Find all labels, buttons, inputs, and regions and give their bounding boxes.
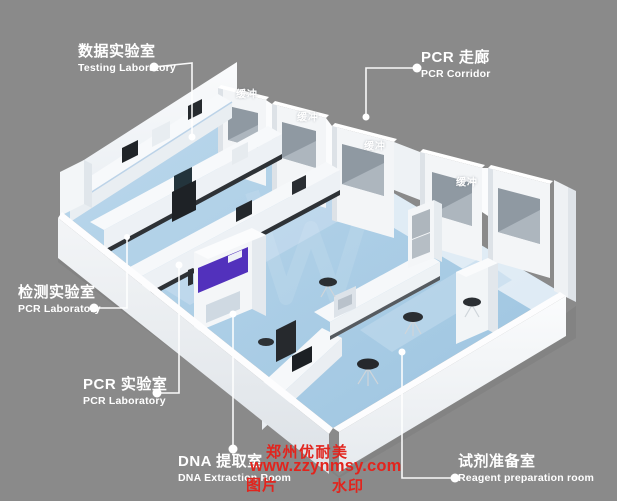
callout-dot: [124, 234, 130, 240]
callout-dot: [176, 262, 183, 269]
lab-chair: [258, 338, 274, 346]
partition-wall: [488, 165, 553, 278]
room-tag-buffer: 缓冲: [456, 174, 478, 189]
label-zh: 试剂准备室: [458, 454, 594, 471]
label-zh: 数据实验室: [78, 44, 176, 61]
room-tag-buffer: 缓冲: [364, 138, 386, 153]
callout-dot: [230, 311, 237, 318]
room-tag-buffer: 缓冲: [297, 109, 319, 124]
label-zh: PCR 实验室: [83, 377, 167, 394]
label-pcr-laboratory-left: 检测实验室 PCR Laboratory: [18, 285, 101, 315]
watermark-left: 图片: [246, 474, 278, 495]
label-reagent-preparation-room: 试剂准备室 Reagent preparation room: [458, 454, 594, 484]
label-pcr-corridor: PCR 走廊 PCR Corridor: [421, 50, 491, 80]
east-corner-wall: [554, 180, 576, 302]
glass-door-cabinet: [408, 200, 442, 268]
label-en: PCR Laboratory: [18, 303, 101, 316]
label-pcr-laboratory-bottom: PCR 实验室 PCR Laboratory: [83, 377, 167, 407]
watermark-right: 水印: [332, 475, 364, 496]
callout-line-pcr-corridor: [366, 68, 417, 117]
label-en: Testing Laboratory: [78, 62, 176, 75]
callout-dot: [363, 114, 370, 121]
label-zh: PCR 走廊: [421, 50, 491, 67]
callout-dot: [189, 134, 196, 141]
room-tag-buffer: 缓冲: [236, 86, 258, 101]
label-en: PCR Laboratory: [83, 395, 167, 408]
lab-rendering-image: 数据实验室 Testing Laboratory PCR 走廊 PCR Corr…: [0, 0, 617, 501]
label-en: Reagent preparation room: [458, 472, 594, 485]
label-testing-laboratory: 数据实验室 Testing Laboratory: [78, 44, 176, 74]
person-figure: [188, 268, 193, 286]
isometric-lab-scene: [0, 0, 617, 501]
callout-dot: [399, 349, 406, 356]
label-en: PCR Corridor: [421, 68, 491, 81]
label-zh: 检测实验室: [18, 285, 101, 302]
